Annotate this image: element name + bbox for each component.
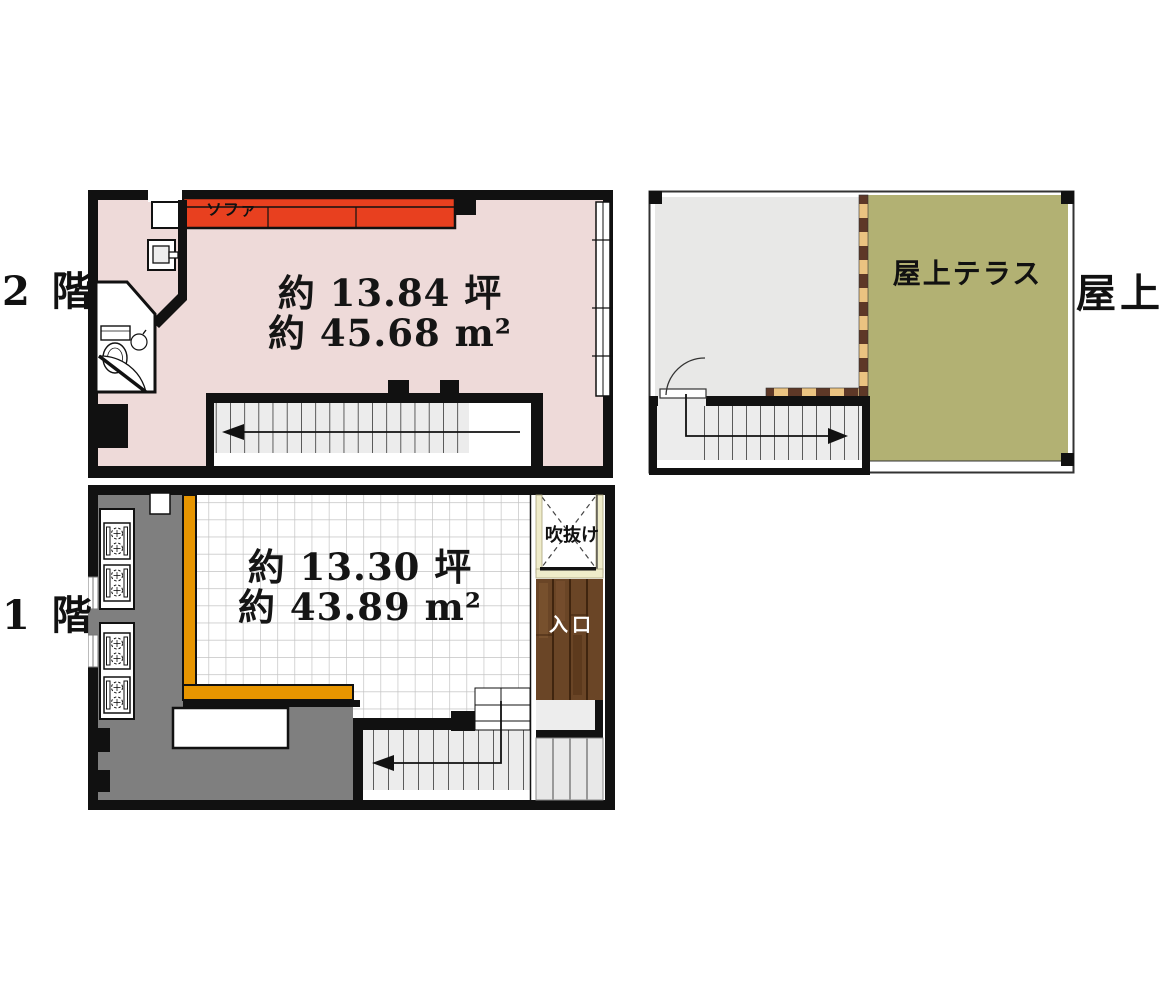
plan-roof-drawing: [648, 190, 1075, 475]
stove-icon: [104, 633, 130, 669]
roof-label: 屋上: [1076, 274, 1161, 314]
floor2-area-text: 約 13.84 坪 約 45.68 m²: [265, 274, 515, 354]
floor2-label: 2 階: [2, 272, 96, 312]
void-label: 吹抜け: [530, 527, 614, 545]
plan-roof: [648, 190, 1075, 475]
floor1-area-text: 約 13.30 坪 約 43.89 m²: [215, 548, 505, 628]
prep-counter: [173, 708, 288, 748]
washbasin: [148, 190, 182, 228]
appliance: [148, 240, 178, 270]
floor1-area-tsubo: 約 13.30 坪: [215, 548, 505, 588]
floor1-area-sqm: 約 43.89 m²: [215, 588, 505, 628]
roof-room: [655, 197, 862, 397]
entrance-area: [536, 579, 603, 700]
wall-post-1f: [451, 711, 475, 731]
floor2-area-tsubo: 約 13.84 坪: [265, 274, 515, 314]
floor2-area-sqm: 約 45.68 m²: [265, 314, 515, 354]
stairs-2f: [206, 393, 543, 478]
sofa-label: ソファ: [206, 202, 257, 218]
kitchen-box: [150, 493, 170, 514]
landing-steps: [475, 688, 530, 730]
stove-icon: [104, 523, 130, 559]
stove-icon: [104, 677, 130, 713]
terrace-label: 屋上テラス: [870, 260, 1065, 288]
floor-plan-page: 2 階 約 13.84 坪 約 45.68 m² ソファ 屋上テラス 屋上 1 …: [0, 0, 1161, 1000]
stove-icon: [104, 565, 130, 601]
entrance-steps: [536, 700, 603, 800]
entrance-label: 入口: [538, 616, 606, 635]
floor1-label: 1 階: [2, 596, 96, 636]
roof-terrace: [866, 195, 1068, 461]
